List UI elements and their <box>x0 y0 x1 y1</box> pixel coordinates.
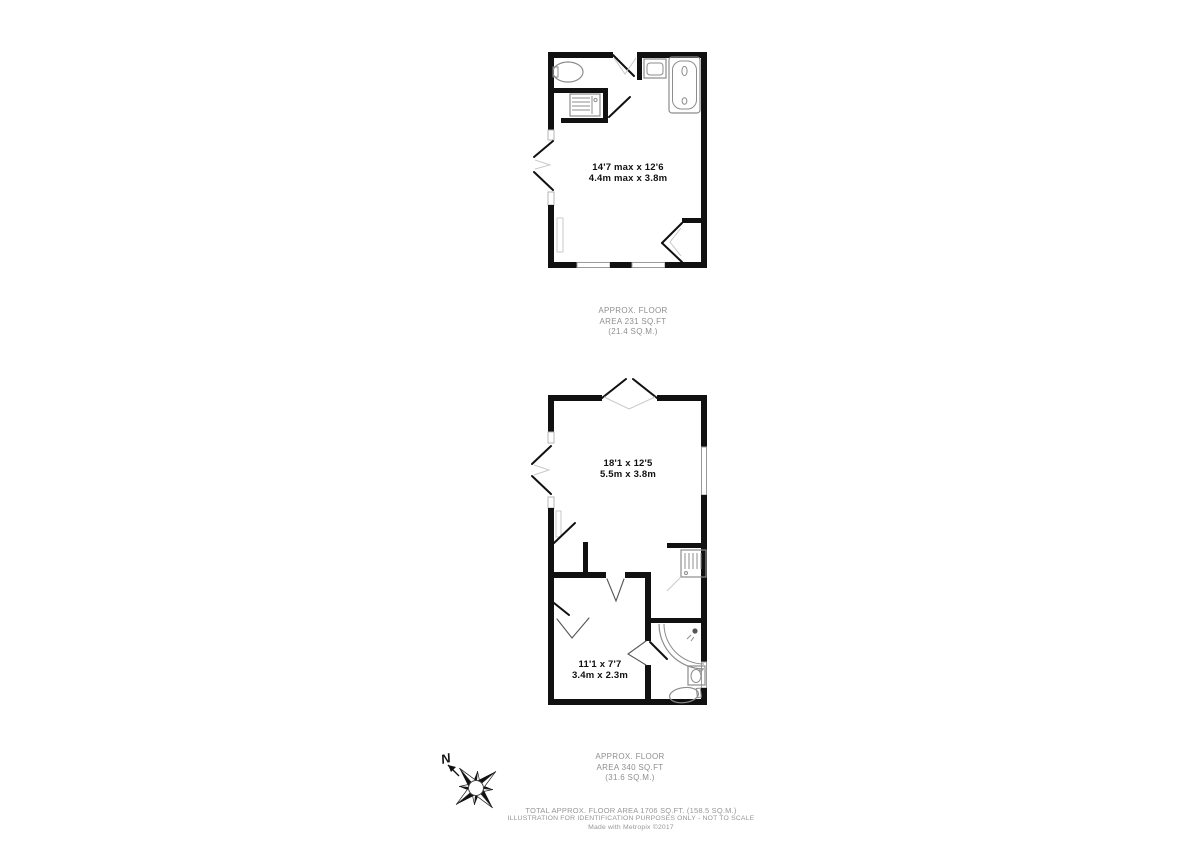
door-swing <box>633 379 657 398</box>
wall <box>548 52 613 58</box>
wall <box>548 395 602 401</box>
wall <box>625 572 648 578</box>
area-label-floor1: APPROX. FLOOR AREA 231 SQ.FT (21.4 SQ.M.… <box>558 306 708 338</box>
door-frame <box>548 497 554 508</box>
wall <box>561 118 608 123</box>
door-frame <box>548 130 554 140</box>
room-dim-metric: 3.4m x 2.3m <box>525 670 675 681</box>
door-swing <box>534 172 553 190</box>
wall <box>603 93 608 118</box>
floorplan-page: 14'7 max x 12'6 4.4m max x 3.8m APPROX. … <box>0 0 1200 848</box>
area-label-floor2: APPROX. FLOOR AREA 340 SQ.FT (31.6 SQ.M.… <box>555 752 705 784</box>
door-arc <box>534 465 549 475</box>
door-swing <box>554 603 569 615</box>
wall <box>665 262 707 268</box>
door-arc <box>535 160 550 169</box>
area-line: AREA 231 SQ.FT <box>558 317 708 328</box>
door-swing <box>534 141 553 157</box>
room-label-floor2-main: 18'1 x 12'5 5.5m x 3.8m <box>553 458 703 480</box>
wall <box>637 58 642 80</box>
area-line: (21.4 SQ.M.) <box>558 327 708 338</box>
room-label-floor2-second: 11'1 x 7'7 3.4m x 2.3m <box>525 659 675 681</box>
cupboard-door <box>667 577 681 591</box>
door-swing <box>602 379 626 398</box>
wall <box>548 88 608 93</box>
wall <box>610 262 632 268</box>
room-dim-imperial: 11'1 x 7'7 <box>525 659 675 670</box>
room-dim-metric: 5.5m x 3.8m <box>553 469 703 480</box>
room-dim-metric: 4.4m max x 3.8m <box>553 173 703 184</box>
wall <box>548 395 554 432</box>
footer-disclaimer: TOTAL APPROX. FLOOR AREA 1706 SQ.FT. (15… <box>431 806 831 832</box>
wall <box>548 205 554 268</box>
door-arc <box>607 579 624 601</box>
wall <box>645 572 651 641</box>
wall <box>701 395 707 447</box>
area-line: APPROX. FLOOR <box>555 752 705 763</box>
wall <box>657 395 707 401</box>
room-label-floor1: 14'7 max x 12'6 4.4m max x 3.8m <box>553 162 703 184</box>
area-line: (31.6 SQ.M.) <box>555 773 705 784</box>
wall <box>701 52 707 268</box>
window-symbol <box>632 263 665 268</box>
area-line: AREA 340 SQ.FT <box>555 763 705 774</box>
wall-reveal <box>556 511 561 537</box>
north-arrow-icon <box>448 765 459 776</box>
wall <box>701 495 707 662</box>
wall <box>548 262 577 268</box>
door-arc <box>604 397 655 409</box>
area-line: APPROX. FLOOR <box>558 306 708 317</box>
door-swing <box>662 243 682 262</box>
wall <box>548 699 707 705</box>
wall <box>548 572 606 578</box>
door-frame <box>548 432 554 443</box>
radiator-symbol <box>570 94 600 116</box>
door-frame <box>548 192 554 205</box>
door-arc <box>557 618 589 638</box>
wall <box>682 218 707 223</box>
footer-illustration-note: ILLUSTRATION FOR IDENTIFICATION PURPOSES… <box>431 815 831 824</box>
wall <box>651 618 707 623</box>
room-dim-imperial: 18'1 x 12'5 <box>553 458 703 469</box>
door-swing <box>554 523 575 543</box>
bathtub-symbol <box>669 57 700 113</box>
footer-credit: Made with Metropix ©2017 <box>431 824 831 833</box>
sink-symbol <box>644 59 666 78</box>
wall-reveal <box>557 218 563 252</box>
window-symbol <box>577 263 610 268</box>
room-dim-imperial: 14'7 max x 12'6 <box>553 162 703 173</box>
wall <box>583 542 588 575</box>
toilet-symbol <box>553 62 583 82</box>
floor-plan-1 <box>523 30 708 275</box>
footer-total-area: TOTAL APPROX. FLOOR AREA 1706 SQ.FT. (15… <box>431 806 831 815</box>
wall <box>667 543 707 548</box>
door-swing <box>532 476 551 494</box>
door-swing <box>532 446 551 464</box>
door-swing <box>609 97 630 117</box>
